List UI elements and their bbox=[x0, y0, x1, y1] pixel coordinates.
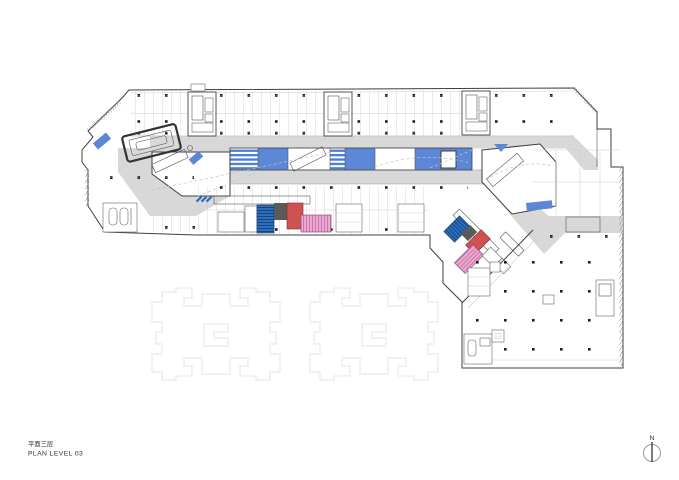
roof-stub bbox=[191, 84, 205, 91]
column-row bbox=[98, 176, 194, 179]
elevator-core-southwest bbox=[103, 203, 137, 232]
highlight-pink-block bbox=[301, 215, 331, 232]
title-block: 平面三层 PLAN LEVEL 03 bbox=[28, 440, 83, 458]
column-row bbox=[540, 235, 618, 238]
plan-title-en: PLAN LEVEL 03 bbox=[28, 451, 83, 458]
north-arrow: N bbox=[644, 435, 661, 462]
stair-core-north-1 bbox=[188, 92, 216, 136]
south-retail-band bbox=[197, 186, 468, 234]
stair-core-north-3 bbox=[462, 91, 490, 135]
column-row bbox=[198, 186, 468, 189]
floor-plan-page: { "title": { "line1": "平面三层", "line2": "… bbox=[0, 0, 679, 480]
highlight-gray-block bbox=[274, 203, 287, 220]
north-label: N bbox=[650, 435, 655, 442]
escalator-bank-stripes bbox=[230, 148, 258, 170]
column-row bbox=[132, 132, 490, 135]
atrium-band bbox=[230, 147, 472, 171]
ghost-tower-outline-west bbox=[152, 288, 280, 380]
center-opening bbox=[543, 295, 554, 304]
facade-hatch-west bbox=[86, 170, 90, 206]
atrium-blue-1 bbox=[258, 148, 288, 170]
stair-core-north-2 bbox=[324, 92, 352, 136]
facade-hatch-east bbox=[620, 168, 624, 366]
atrium-opening bbox=[441, 151, 456, 168]
floor-plan-drawing: 平面三层 PLAN LEVEL 03 N bbox=[0, 0, 679, 480]
escalator-bank-stripes bbox=[330, 148, 345, 170]
ghost-tower-outline-east bbox=[310, 288, 438, 380]
column-row bbox=[145, 226, 195, 229]
highlight-red-block bbox=[287, 203, 303, 229]
core-wing-east bbox=[596, 280, 614, 316]
highlight-navy-block bbox=[257, 205, 274, 233]
atrium-blue-2 bbox=[345, 148, 375, 170]
plan-title-cn: 平面三层 bbox=[28, 440, 53, 448]
